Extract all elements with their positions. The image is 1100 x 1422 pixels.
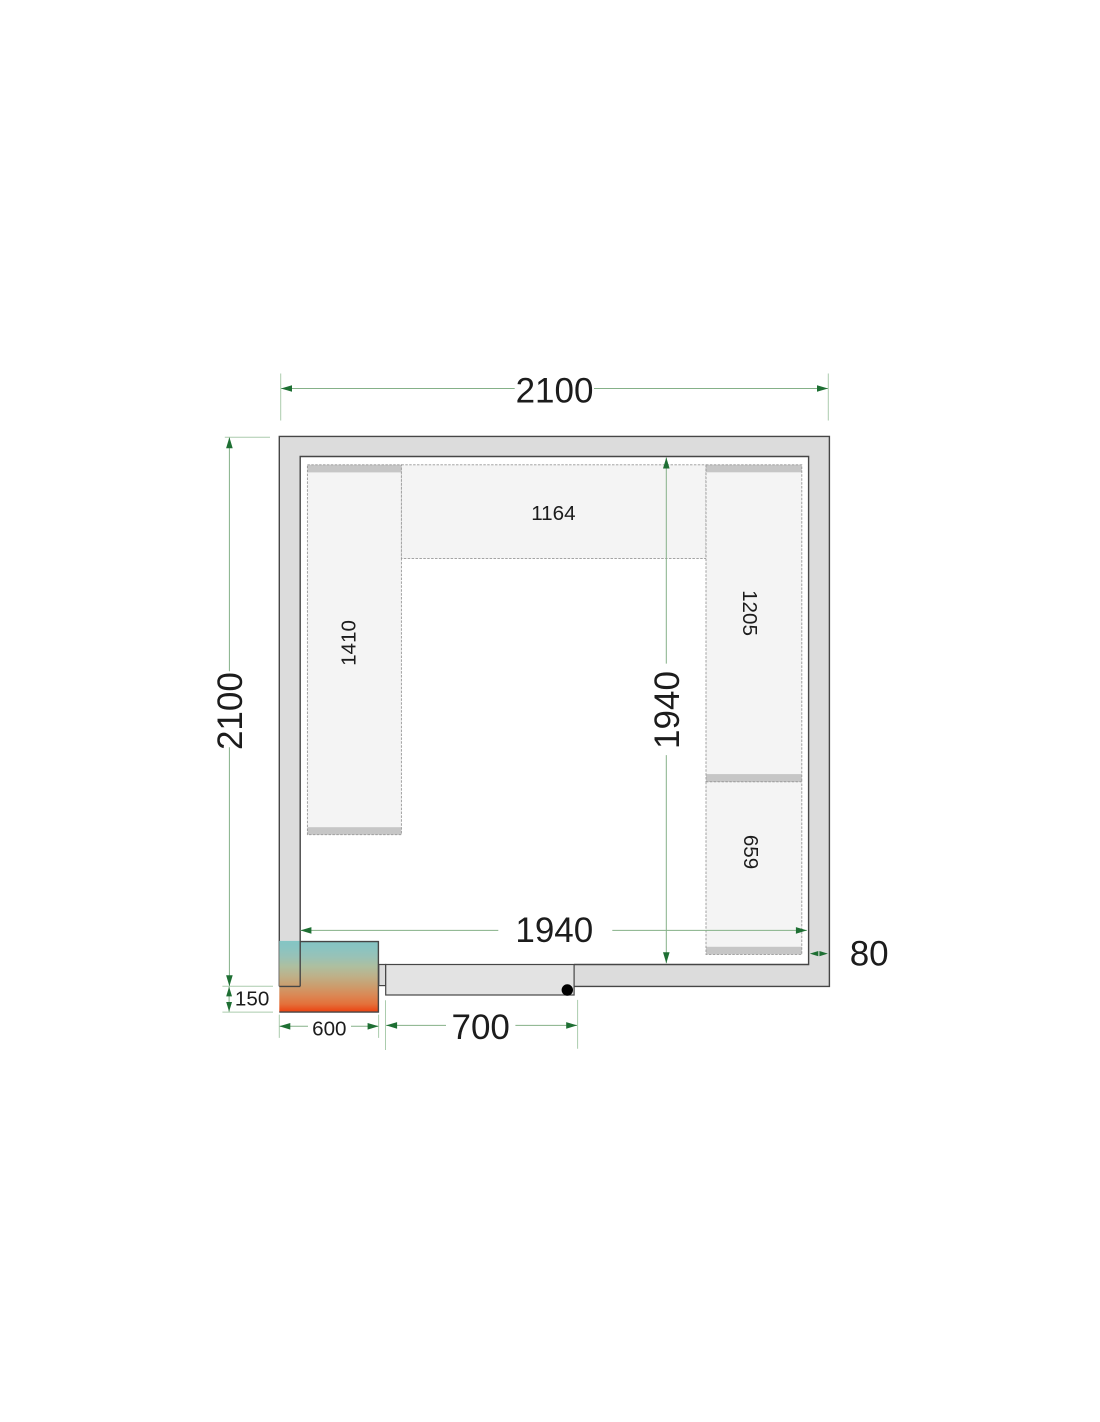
svg-text:600: 600: [312, 1017, 346, 1040]
svg-text:2100: 2100: [211, 672, 250, 750]
svg-text:1205: 1205: [738, 590, 761, 636]
svg-text:2100: 2100: [516, 371, 594, 410]
svg-text:1410: 1410: [338, 620, 361, 666]
svg-text:1940: 1940: [648, 671, 687, 749]
svg-text:1940: 1940: [515, 911, 593, 950]
svg-text:150: 150: [235, 987, 269, 1010]
svg-text:659: 659: [739, 835, 762, 869]
svg-text:700: 700: [451, 1008, 509, 1047]
svg-text:80: 80: [850, 935, 889, 974]
svg-text:1164: 1164: [531, 502, 575, 525]
